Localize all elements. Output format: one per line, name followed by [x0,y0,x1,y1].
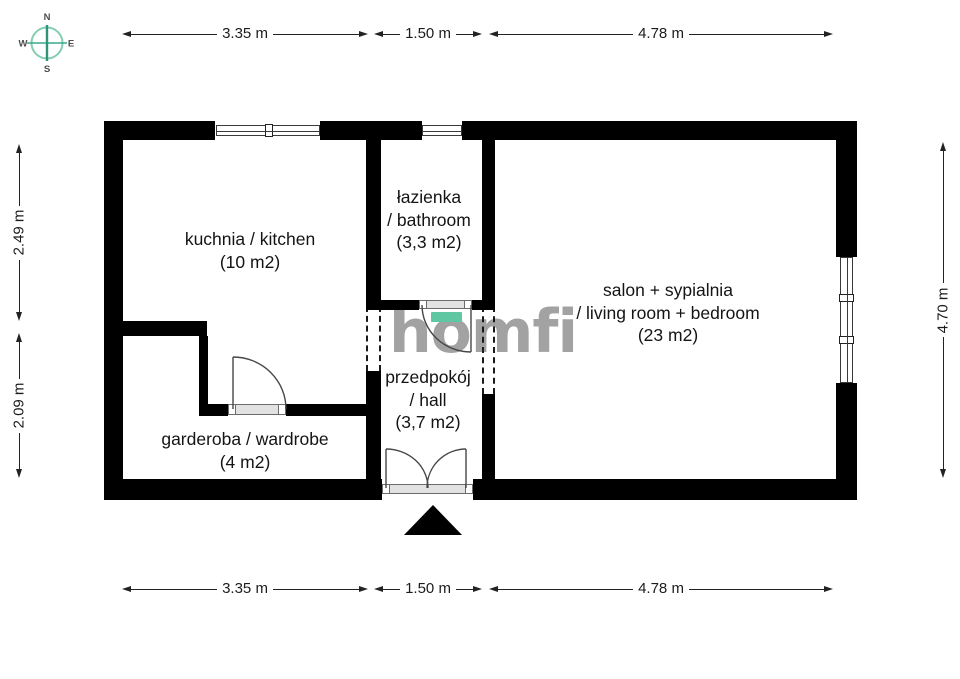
dim-arrow [940,469,946,478]
wall-bathroom-bottom [366,300,419,310]
dimension-value: 2.09 m [11,383,28,429]
dim-arrow [489,31,498,37]
room-area: (3,7 m2) [385,411,471,434]
room-name: garderoba / wardrobe [161,428,328,451]
wall-hall-left [366,371,381,479]
wall-bathroom-left [366,140,381,302]
dimension-bottom-hall: 1.50 m [374,581,482,597]
dimension-left-upper: 2.49 m [11,144,27,321]
floorplan-canvas: homfi [0,0,960,679]
dim-arrow [359,586,368,592]
wall-wardrobe-top [199,404,228,416]
entrance-door-threshold [382,484,473,494]
room-name: kuchnia / kitchen [185,228,315,251]
room-area: (10 m2) [185,251,315,274]
dimension-value: 1.50 m [400,25,456,42]
dimension-value: 4.70 m [935,287,952,333]
dim-arrow [824,586,833,592]
dim-arrow [16,469,22,478]
wall-segment [836,121,857,257]
wall-segment [462,121,857,140]
dim-arrow [16,144,22,153]
dimension-left-lower: 2.09 m [11,333,27,478]
room-area: (23 m2) [576,324,759,347]
room-label-wardrobe: garderoba / wardrobe (4 m2) [161,428,328,473]
entrance-door-right-arc [427,449,466,488]
room-label-hall: przedpokój / hall (3,7 m2) [385,366,471,434]
wardrobe-door-threshold [228,404,286,415]
dimension-value: 4.78 m [633,25,689,42]
dimension-value: 3.35 m [217,580,273,597]
window-mullion [265,124,273,137]
wall-segment [473,479,857,500]
dim-arrow [16,312,22,321]
room-name-en: / living room + bedroom [576,302,759,325]
entrance-door-left-arc [386,449,428,488]
room-label-kitchen: kuchnia / kitchen (10 m2) [185,228,315,273]
dimension-value: 4.78 m [633,580,689,597]
open-passage-kitchen-hall [366,306,381,371]
dim-arrow [473,586,482,592]
room-area: (3,3 m2) [387,231,471,254]
wall-kitchen-wardrobe-divider [199,336,208,404]
dim-arrow [374,586,383,592]
dim-arrow [359,31,368,37]
dimension-value: 1.50 m [400,580,456,597]
dimension-bottom-kitchen: 3.35 m [122,581,368,597]
room-name: salon + sypialnia [576,279,759,302]
homfi-logo-accent-bar [431,312,462,322]
wall-segment [104,479,382,500]
wall-livingroom-left [482,394,495,479]
wall-livingroom-left [482,140,495,308]
bathroom-door-threshold [419,300,472,309]
dim-arrow [122,586,131,592]
open-passage-hall-livingroom [482,306,495,394]
wall-wardrobe-top [286,404,368,416]
window-livingroom [840,257,853,383]
dim-arrow [824,31,833,37]
dimension-value: 2.49 m [11,210,28,256]
window-bathroom [422,125,462,136]
wardrobe-door-arc [233,357,286,409]
dim-arrow [16,333,22,342]
compass-south-label: S [44,64,50,74]
wall-segment [104,121,123,500]
room-area: (4 m2) [161,451,328,474]
compass-north-label: N [44,12,51,23]
dimension-bottom-livingroom: 4.78 m [489,581,833,597]
room-name-en: / bathroom [387,209,471,232]
window-kitchen [216,125,320,136]
entrance-arrow [404,505,462,535]
wall-segment [320,121,422,140]
room-name: łazienka [387,186,471,209]
room-label-bathroom: łazienka / bathroom (3,3 m2) [387,186,471,254]
dimension-top-livingroom: 4.78 m [489,26,833,42]
compass-east-label: E [68,39,74,50]
dim-arrow [940,142,946,151]
dimension-top-kitchen: 3.35 m [122,26,368,42]
dimension-top-hall: 1.50 m [374,26,482,42]
room-name: przedpokój [385,366,471,389]
dim-arrow [122,31,131,37]
dim-arrow [473,31,482,37]
room-label-livingroom: salon + sypialnia / living room + bedroo… [576,279,759,347]
window-mullion [839,336,854,344]
dimension-right-livingroom: 4.70 m [935,142,951,478]
window-mullion [839,294,854,302]
room-name-en: / hall [385,389,471,412]
wall-kitchen-wardrobe-divider [123,321,207,336]
dimension-value: 3.35 m [217,25,273,42]
dim-arrow [489,586,498,592]
compass-west-label: W [19,39,28,50]
compass-rose-icon: N E S W [18,10,76,74]
dim-arrow [374,31,383,37]
